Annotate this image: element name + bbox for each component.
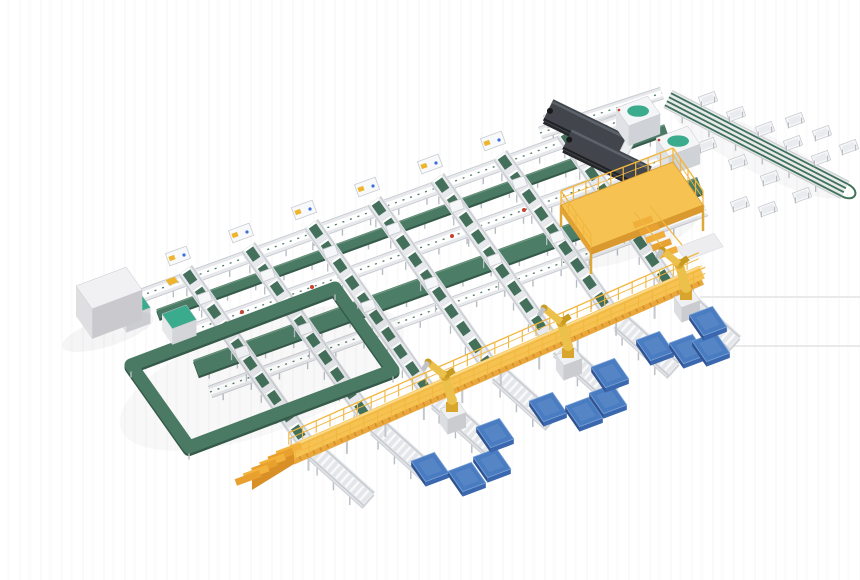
- estop-marker: [522, 208, 526, 212]
- packing-table: [812, 125, 831, 141]
- packing-table: [758, 201, 777, 217]
- lane-induct-station: [354, 177, 379, 197]
- estop-marker: [450, 234, 454, 238]
- lane-induct-station: [417, 154, 442, 174]
- lane-induct-station-shape: [291, 200, 316, 220]
- scene-canvas: [0, 0, 860, 580]
- estop-marker-shape: [450, 234, 454, 238]
- estop-marker-shape: [522, 208, 526, 212]
- packing-table: [698, 91, 717, 107]
- scanner-housing-shape: [667, 135, 689, 146]
- lane-induct-station-shape: [371, 184, 374, 187]
- lane-induct-station: [291, 200, 316, 220]
- walkway-stairs: [235, 442, 303, 490]
- estop-marker-shape: [240, 310, 244, 314]
- scanner-housing-shape: [627, 105, 649, 116]
- scanner-housing-shape: [658, 139, 661, 142]
- estop-marker: [240, 310, 244, 314]
- lane-induct-station-shape: [480, 131, 505, 151]
- packing-table: [785, 112, 804, 128]
- lane-induct-station: [228, 223, 253, 243]
- lane-induct-station-shape: [497, 138, 500, 141]
- telescopic-loader-shape: [566, 137, 572, 143]
- lane-induct-station-shape: [354, 177, 379, 197]
- scanner-housing-shape: [618, 109, 621, 112]
- discharge-conveyor: [310, 445, 374, 505]
- industrial-sorting-system-render: [0, 0, 860, 580]
- packing-table: [811, 150, 830, 166]
- packing-table: [839, 139, 858, 155]
- lane-induct-station-shape: [165, 246, 190, 266]
- estop-marker-shape: [310, 285, 314, 289]
- lane-induct-station-shape: [434, 161, 437, 164]
- telescopic-loader-shape: [547, 108, 553, 114]
- staging-panel-shape: [677, 233, 723, 260]
- lane-induct-station-shape: [228, 223, 253, 243]
- lane-induct-station-shape: [182, 253, 185, 256]
- discharge-conveyor-shape: [315, 451, 369, 499]
- lane-induct-station: [165, 246, 190, 266]
- lane-induct-station-shape: [245, 230, 248, 233]
- packing-table: [730, 196, 749, 212]
- lane-induct-station-shape: [308, 207, 311, 210]
- estop-marker: [310, 285, 314, 289]
- staging-panel: [677, 233, 723, 260]
- lane-induct-station-shape: [417, 154, 442, 174]
- lane-induct-station: [480, 131, 505, 151]
